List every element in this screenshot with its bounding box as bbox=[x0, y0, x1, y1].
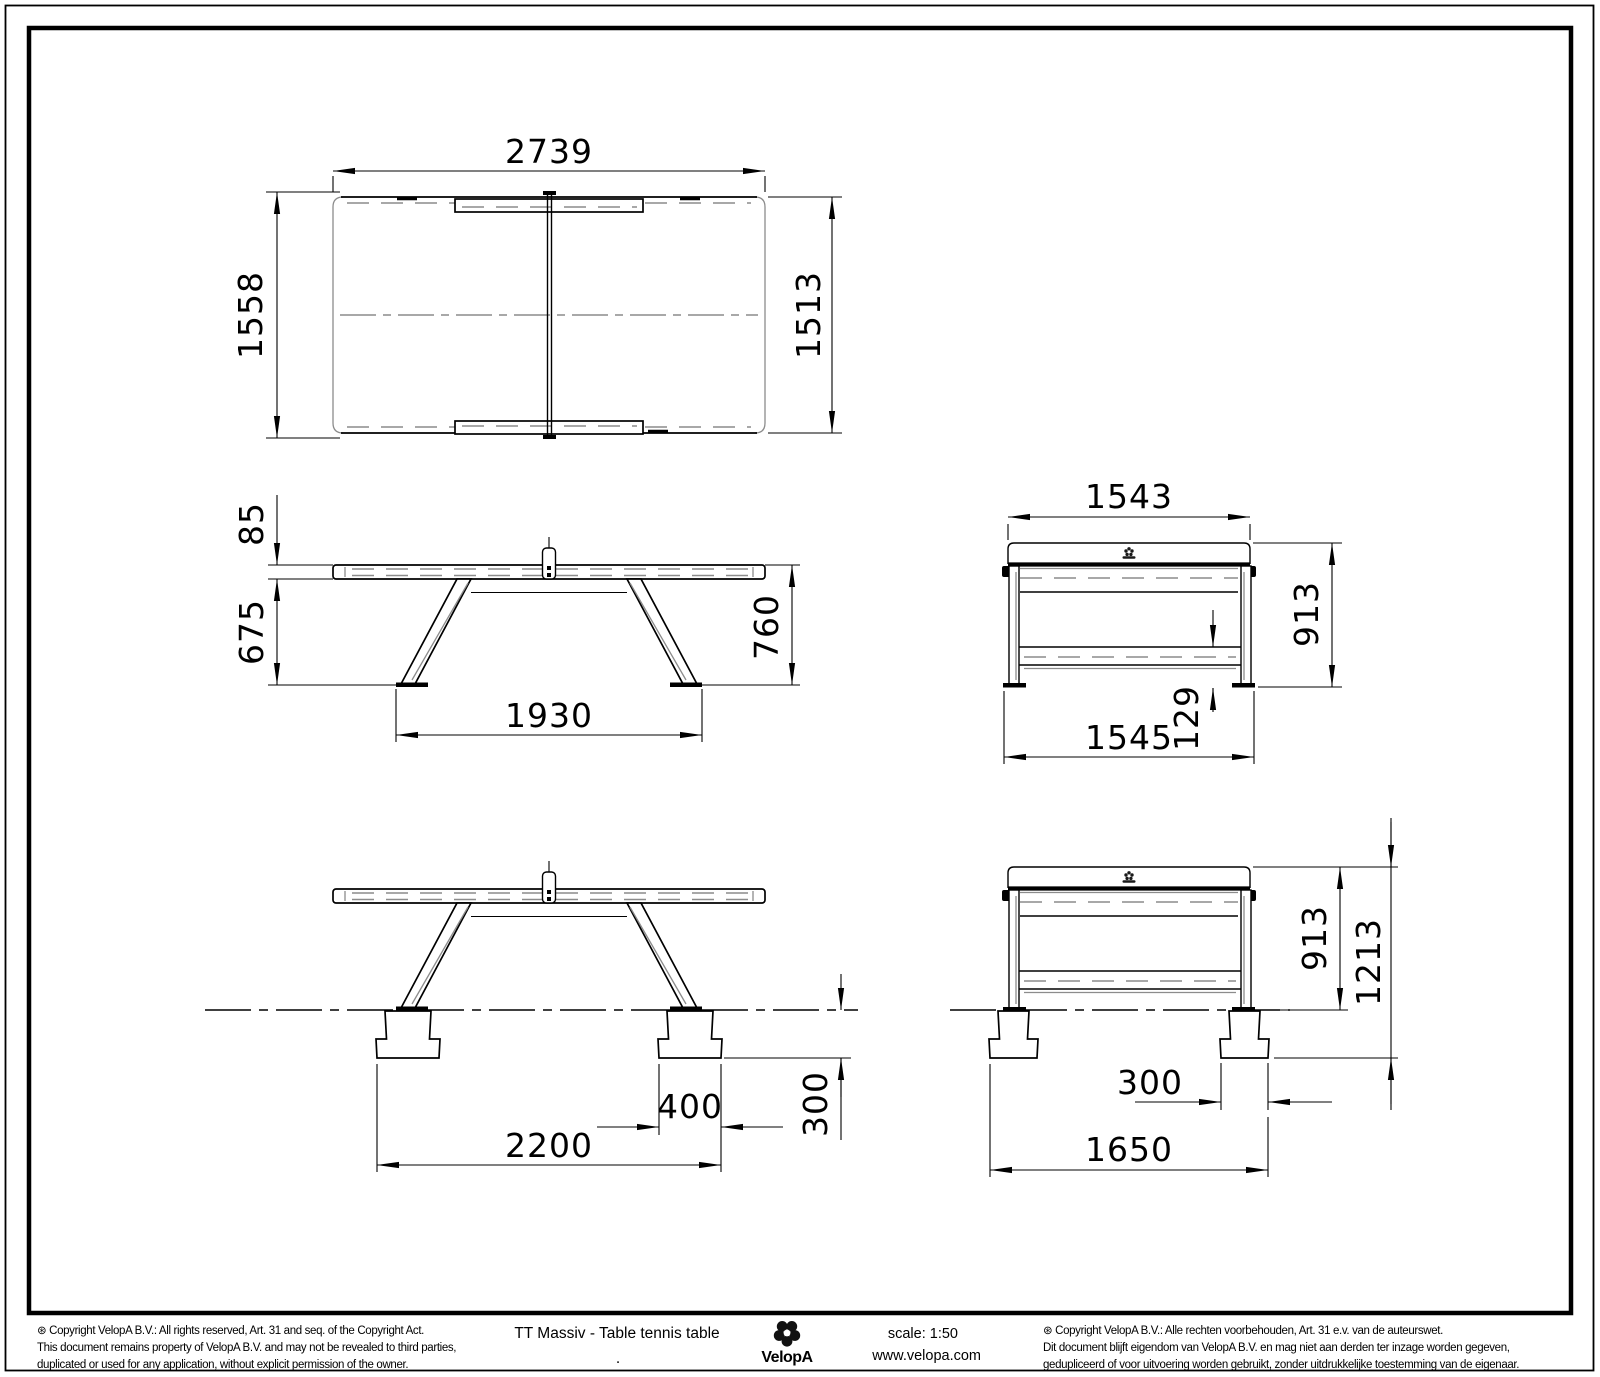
left-foot bbox=[1003, 683, 1026, 688]
net-band bbox=[1008, 543, 1250, 564]
end-view: 1543 913 bbox=[1002, 477, 1342, 764]
right-footing bbox=[658, 1011, 722, 1058]
dim-end-height-group: 913 bbox=[1253, 543, 1342, 687]
right-footing bbox=[1220, 1011, 1269, 1058]
technical-drawing: 2739 1558 1513 bbox=[0, 0, 1600, 1377]
dim-label-side-leg-spread: 1930 bbox=[505, 696, 593, 735]
net-post bbox=[543, 537, 556, 579]
dim-footing-depth-group: 300 bbox=[724, 974, 851, 1140]
dim-side-height-group: 760 bbox=[747, 565, 792, 685]
dim-end-top-width-group: 1543 bbox=[1008, 477, 1250, 540]
dim-label-end-leg-spread: 1545 bbox=[1085, 718, 1173, 757]
top-support-rail bbox=[455, 199, 643, 212]
drawing-title: TT Massiv - Table tennis table bbox=[514, 1325, 719, 1342]
dim-label-end-total-height: 1213 bbox=[1349, 918, 1388, 1006]
net-band bbox=[1008, 867, 1250, 888]
drawing-sheet: 2739 1558 1513 bbox=[0, 0, 1600, 1377]
dim-label-top-length: 2739 bbox=[505, 132, 593, 171]
copyright-en-line1: ⊛ Copyright VelopA B.V.: All rights rese… bbox=[37, 1325, 424, 1337]
dim-label-end-footing-spread: 1650 bbox=[1085, 1130, 1173, 1169]
dim-footing-length-group: 400 bbox=[597, 1064, 783, 1135]
left-footing bbox=[989, 1011, 1038, 1058]
copyright-en-line2: This document remains property of VelopA… bbox=[37, 1342, 456, 1354]
dim-label-top-width-surface: 1513 bbox=[789, 271, 828, 359]
dim-top-width-overall-group: 1558 bbox=[231, 192, 340, 438]
copyright-nl-line2: Dit document blijft eigendom van VelopA … bbox=[1043, 1342, 1510, 1354]
left-leg bbox=[1009, 890, 1019, 1008]
dim-side-underside-group: 675 bbox=[232, 579, 277, 685]
dim-label-end-footing-width: 300 bbox=[1117, 1063, 1183, 1102]
scale-label: scale: 1:50 bbox=[888, 1326, 958, 1342]
title-block: ⊛ Copyright VelopA B.V.: All rights rese… bbox=[37, 1321, 1519, 1371]
dim-label-end-top-width: 1543 bbox=[1085, 477, 1173, 516]
left-foot bbox=[396, 683, 428, 688]
side-view-installed: 2200 400 300 bbox=[205, 861, 858, 1172]
dim-label-footing-spread: 2200 bbox=[505, 1126, 593, 1165]
right-foot bbox=[1232, 683, 1255, 688]
dim-end-rail-clearance-group: 129 bbox=[1167, 610, 1213, 751]
copyright-nl-line3: gedupliceerd of voor uitvoering worden g… bbox=[1043, 1359, 1519, 1371]
dim-side-leg-spread-group: 1930 bbox=[396, 689, 702, 742]
dim-end-footing-width-group: 300 bbox=[1117, 1063, 1332, 1110]
dim-top-width-surface-group: 1513 bbox=[768, 197, 842, 433]
copyright-en-line3: duplicated or used for any application, … bbox=[37, 1359, 408, 1371]
dim-top-length-group: 2739 bbox=[333, 132, 765, 192]
net-post bbox=[543, 861, 556, 903]
velopa-logo bbox=[774, 1321, 800, 1347]
dim-side-top-thickness-group: 85 bbox=[232, 495, 277, 565]
dim-label-footing-length: 400 bbox=[657, 1087, 723, 1126]
right-leg bbox=[1241, 890, 1251, 1008]
table-top-outline bbox=[333, 197, 765, 434]
title-dot: . bbox=[616, 1350, 620, 1367]
outer-border bbox=[6, 6, 1594, 1371]
right-foot bbox=[670, 683, 702, 688]
top-view: 2739 1558 1513 bbox=[231, 132, 842, 439]
website-label: www.velopa.com bbox=[871, 1348, 981, 1364]
dim-label-footing-depth: 300 bbox=[796, 1071, 835, 1137]
dim-label-top-width-overall: 1558 bbox=[231, 271, 270, 359]
right-leg bbox=[1241, 566, 1251, 684]
dim-label-side-underside: 675 bbox=[232, 599, 271, 665]
side-view: 85 675 760 1930 bbox=[232, 495, 800, 742]
dim-label-end-height-above-ground: 913 bbox=[1295, 905, 1334, 971]
end-view-installed: 913 1213 300 1650 bbox=[950, 818, 1398, 1177]
dim-label-end-height: 913 bbox=[1287, 581, 1326, 647]
left-leg bbox=[1009, 566, 1019, 684]
brand-wordmark: VelopA bbox=[761, 1349, 813, 1366]
dim-label-side-height: 760 bbox=[747, 594, 786, 660]
copyright-nl-line1: ⊛ Copyright VelopA B.V.: Alle rechten vo… bbox=[1043, 1325, 1443, 1337]
dim-end-total-height-group: 1213 bbox=[1274, 818, 1398, 1110]
bottom-support-rail bbox=[455, 421, 643, 434]
dim-label-side-top-thickness: 85 bbox=[232, 502, 271, 546]
left-footing bbox=[376, 1011, 440, 1058]
dim-end-leg-spread-group: 1545 bbox=[1004, 691, 1254, 764]
